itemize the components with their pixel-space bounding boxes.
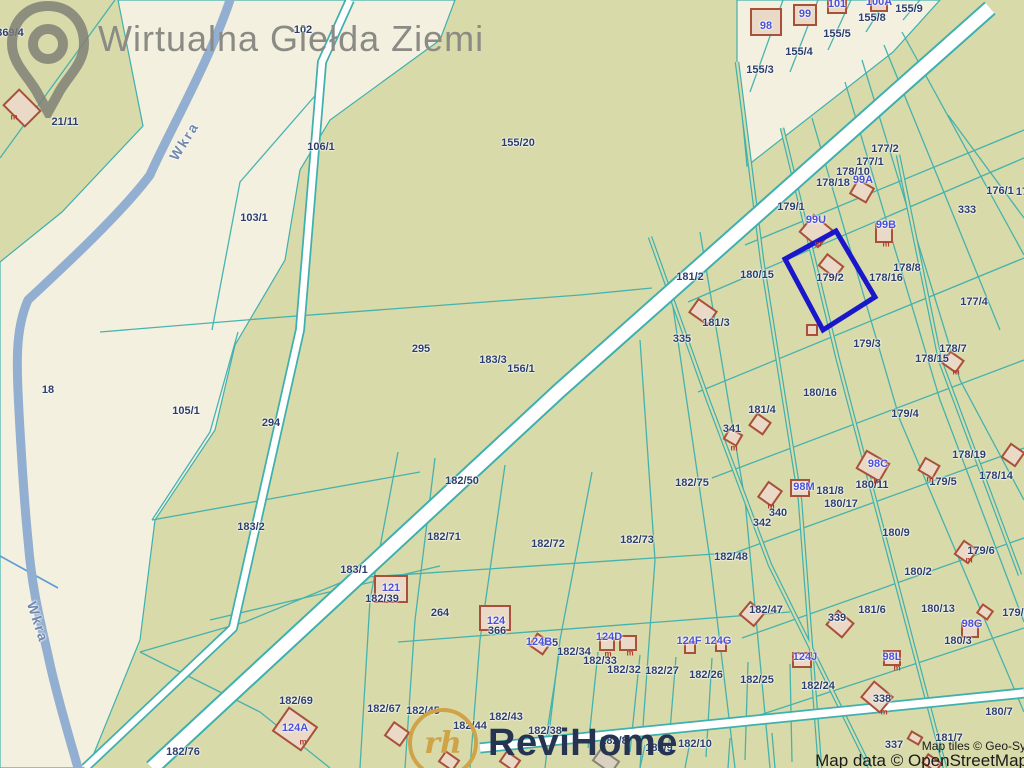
parcel-label-295[interactable]: 295 <box>412 343 430 355</box>
parcel-label-182-25[interactable]: 182/25 <box>740 674 774 686</box>
building-mark-m: m <box>767 502 774 511</box>
parcel-label-338[interactable]: 338 <box>873 693 891 705</box>
building-label-124G: 124G <box>705 635 732 647</box>
parcel-label-179-2[interactable]: 179/2 <box>816 272 844 284</box>
parcel-label-182-27[interactable]: 182/27 <box>645 665 679 677</box>
parcel-label-182-47[interactable]: 182/47 <box>749 604 783 616</box>
parcel-label-155-3[interactable]: 155/3 <box>746 64 774 76</box>
parcel-label-294[interactable]: 294 <box>262 417 280 429</box>
parcel-label-180-17[interactable]: 180/17 <box>824 498 858 510</box>
parcel-label-182-73[interactable]: 182/73 <box>620 534 654 546</box>
parcel-label-182-26[interactable]: 182/26 <box>689 669 723 681</box>
parcel-label-18[interactable]: 18 <box>42 384 54 396</box>
building-label-99U: 99U <box>806 214 826 226</box>
parcel-label-176-1[interactable]: 176/1 <box>986 185 1014 197</box>
building-label-98M: 98M <box>793 481 814 493</box>
parcel-label-182-76[interactable]: 182/76 <box>166 746 200 758</box>
parcel-label-333[interactable]: 333 <box>958 204 976 216</box>
building-label-124: 124 <box>487 615 505 627</box>
parcel-label-177-2[interactable]: 177/2 <box>871 143 899 155</box>
parcel-label-180-7[interactable]: 180/7 <box>985 706 1013 718</box>
watermark-brand-text: Wirtualna Giełda Ziemi <box>98 18 484 60</box>
revihome-monogram-text: rh <box>424 726 462 761</box>
parcel-label-180-13[interactable]: 180/13 <box>921 603 955 615</box>
revihome-logo: rh ReviHome <box>408 708 678 768</box>
building-label-124F: 124F <box>676 635 701 647</box>
building-label-101: 101 <box>828 0 846 10</box>
parcel-label-183-2[interactable]: 183/2 <box>237 521 265 533</box>
building-mark-m: m <box>604 650 611 659</box>
building-mark-m: m <box>299 738 306 747</box>
building-mark-m: m <box>626 649 633 658</box>
parcel-label-182-10[interactable]: 182/10 <box>678 738 712 750</box>
parcel-label-179-3[interactable]: 179/3 <box>853 338 881 350</box>
building-mark-m: m <box>873 477 880 486</box>
parcel-label-183-1[interactable]: 183/1 <box>340 564 368 576</box>
building-outline <box>807 325 817 335</box>
map-viewport[interactable]: Wirtualna Giełda Ziemi rh ReviHome Map t… <box>0 0 1024 768</box>
parcel-label-181-2[interactable]: 181/2 <box>676 271 704 283</box>
building-label-124J: 124J <box>793 651 817 663</box>
parcel-label-182-24[interactable]: 182/24 <box>801 680 835 692</box>
parcel-label-155-20[interactable]: 155/20 <box>501 137 535 149</box>
attribution-osm-link[interactable]: Map data © OpenStreetMap <box>815 752 1024 768</box>
building-mark-m: m <box>730 444 737 453</box>
parcel-label-178-14[interactable]: 178/14 <box>979 470 1013 482</box>
building-mark-m: m <box>882 240 889 249</box>
parcel-label-181-4[interactable]: 181/4 <box>748 404 776 416</box>
parcel-label-182-39[interactable]: 182/39 <box>365 593 399 605</box>
parcel-label-178-16[interactable]: 178/16 <box>869 272 903 284</box>
parcel-label-180-2[interactable]: 180/2 <box>904 566 932 578</box>
parcel-label-106-1[interactable]: 106/1 <box>307 141 335 153</box>
parcel-label-181-3[interactable]: 181/3 <box>702 317 730 329</box>
parcel-label-182-72[interactable]: 182/72 <box>531 538 565 550</box>
parcel-label-182-67[interactable]: 182/67 <box>367 703 401 715</box>
building-mark-m: m <box>880 708 887 717</box>
parcel-label-105-1[interactable]: 105/1 <box>172 405 200 417</box>
parcel-label-155-9[interactable]: 155/9 <box>895 3 923 15</box>
parcel-label-103-1[interactable]: 103/1 <box>240 212 268 224</box>
parcel-label-182-48[interactable]: 182/48 <box>714 551 748 563</box>
parcel-label-181-8[interactable]: 181/8 <box>816 485 844 497</box>
building-label-99B: 99B <box>876 219 896 231</box>
parcel-label-264[interactable]: 264 <box>431 607 449 619</box>
parcel-label-180-9[interactable]: 180/9 <box>882 527 910 539</box>
parcel-label-178-18[interactable]: 178/18 <box>816 177 850 189</box>
site-watermark: Wirtualna Giełda Ziemi <box>6 0 484 118</box>
parcel-label-178-15[interactable]: 178/15 <box>915 353 949 365</box>
parcel-label-179-1[interactable]: 179/1 <box>1002 607 1024 619</box>
parcel-label-180-3[interactable]: 180/3 <box>944 635 972 647</box>
building-mark-m: m <box>926 475 933 484</box>
parcel-label-335[interactable]: 335 <box>673 333 691 345</box>
parcel-label-178-19[interactable]: 178/19 <box>952 449 986 461</box>
parcel-label-155-5[interactable]: 155/5 <box>823 28 851 40</box>
parcel-label-177-4[interactable]: 177/4 <box>960 296 988 308</box>
building-mark-m: m <box>814 240 821 249</box>
building-mark-m: m <box>952 368 959 377</box>
parcel-label-179-4[interactable]: 179/4 <box>891 408 919 420</box>
parcel-label-182-34[interactable]: 182/34 <box>557 646 591 658</box>
building-label-121: 121 <box>382 582 400 594</box>
revihome-monogram-icon: rh <box>408 708 478 768</box>
parcel-label-156-1[interactable]: 156/1 <box>507 363 535 375</box>
building-label-98G: 98G <box>962 618 983 630</box>
parcel-label-155-8[interactable]: 155/8 <box>858 12 886 24</box>
parcel-label-182-71[interactable]: 182/71 <box>427 531 461 543</box>
parcel-label-183-3[interactable]: 183/3 <box>479 354 507 366</box>
parcel-label-341[interactable]: 341 <box>723 423 741 435</box>
building-label-124D: 124D <box>596 631 622 643</box>
parcel-label-155-4[interactable]: 155/4 <box>785 46 813 58</box>
parcel-label-179-1[interactable]: 179/1 <box>777 201 805 213</box>
building-label-124A: 124A <box>282 722 308 734</box>
building-label-124B: 124B <box>526 636 552 648</box>
parcel-label-17[interactable]: 17 <box>1016 186 1024 198</box>
parcel-label-182-50[interactable]: 182/50 <box>445 475 479 487</box>
parcel-label-180-15[interactable]: 180/15 <box>740 269 774 281</box>
building-label-98L: 98L <box>883 651 902 663</box>
map-attribution: Map tiles © Geo-Sy Map data © OpenStreet… <box>815 740 1024 768</box>
parcel-label-181-6[interactable]: 181/6 <box>858 604 886 616</box>
parcel-label-339[interactable]: 339 <box>828 612 846 624</box>
parcel-label-342[interactable]: 342 <box>753 517 771 529</box>
building-mark-m: m <box>965 556 972 565</box>
building-label-98: 98 <box>760 20 772 32</box>
revihome-brand-text: ReviHome <box>488 722 678 765</box>
parcel-label-182-75[interactable]: 182/75 <box>675 477 709 489</box>
map-pin-icon <box>6 0 90 118</box>
building-label-100A: 100A <box>866 0 892 8</box>
building-label-98C: 98C <box>868 458 888 470</box>
building-label-99: 99 <box>799 8 811 20</box>
building-label-99A: 99A <box>853 174 873 186</box>
parcel-label-180-11[interactable]: 180/11 <box>855 479 888 491</box>
building-mark-m: m <box>893 664 900 673</box>
parcel-label-180-16[interactable]: 180/16 <box>803 387 837 399</box>
parcel-label-182-69[interactable]: 182/69 <box>279 695 313 707</box>
